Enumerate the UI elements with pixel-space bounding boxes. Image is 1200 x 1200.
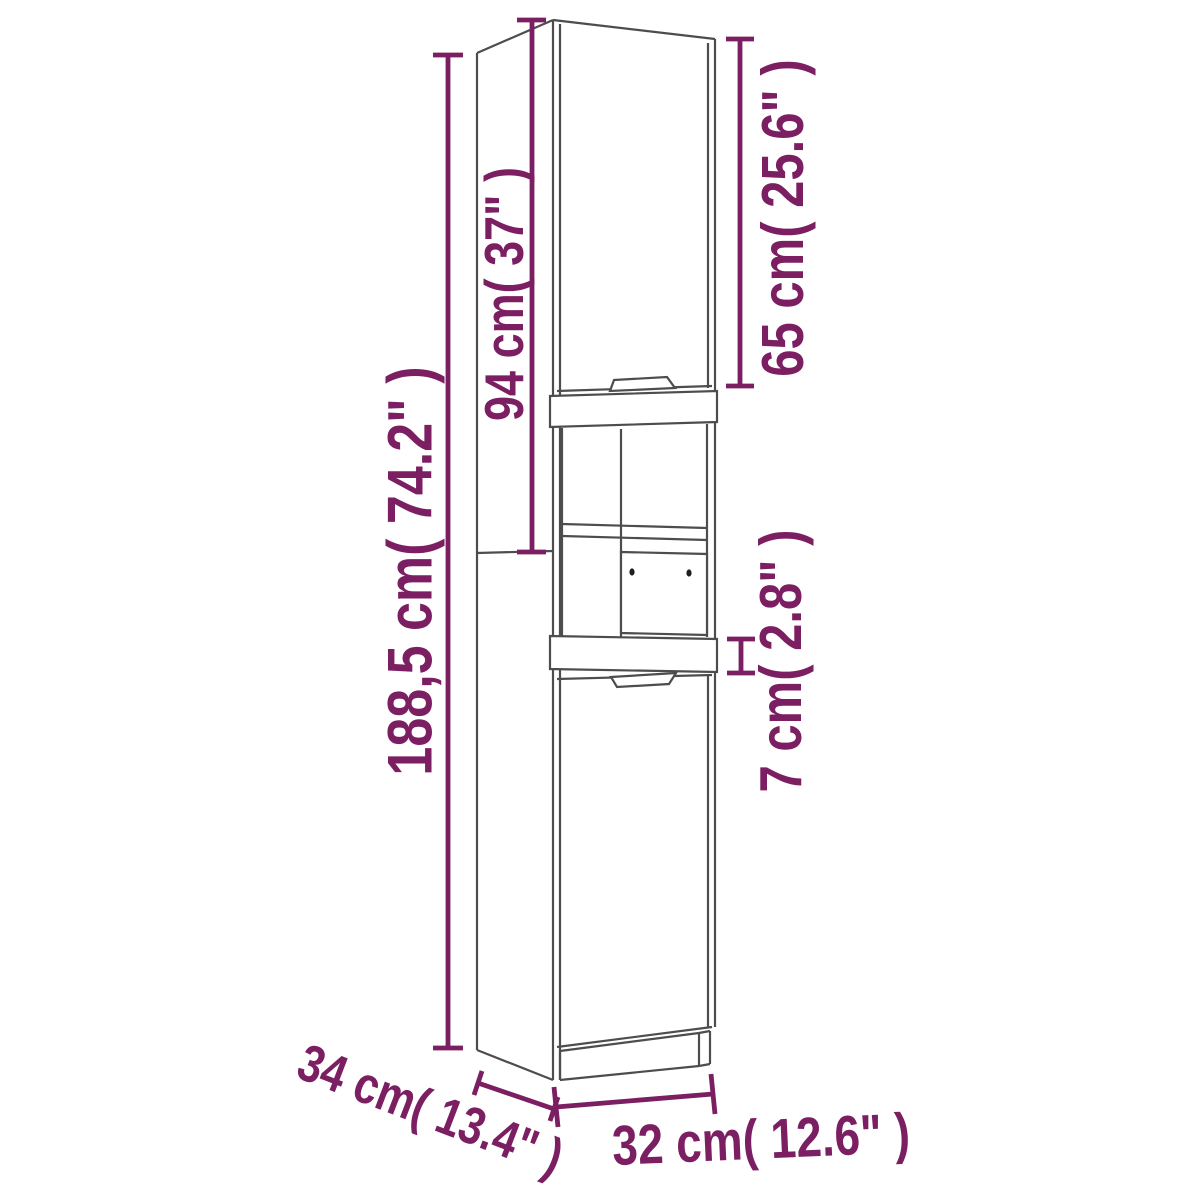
lower-door-bottom-edge: [557, 1027, 712, 1047]
width-line: [556, 1094, 713, 1107]
cabinet-upper-door: [557, 43, 712, 391]
side-panel-bottom-edge: [477, 1050, 553, 1080]
width-right-tick: [711, 1074, 715, 1114]
cabinet-open-compartment: [562, 424, 707, 637]
width-left-tick: [554, 1087, 558, 1127]
dimension-label-width: 32 cm( 12.6" ): [611, 1104, 911, 1173]
cabinet-inner-door: [621, 552, 707, 635]
plinth-right-bottom-sliver: [699, 1064, 710, 1066]
plinth-bottom-edge: [560, 1066, 699, 1080]
product-dimension-diagram: 188,5 cm( 74.2" ) 94 cm( 37" ) 65 cm( 25…: [0, 0, 1200, 1200]
plinth-right-top-sliver: [699, 1031, 710, 1033]
upper-door-handle: [610, 377, 675, 391]
cabinet-top-edge: [553, 20, 715, 39]
cabinet-base-plinth: [560, 1031, 710, 1080]
diagram-canvas: [0, 0, 1200, 1200]
plinth-top-edge: [560, 1033, 699, 1051]
dimension-label-upper-section-height: 94 cm( 37" ): [477, 167, 532, 421]
dimension-label-top-door-height: 65 cm( 25.6" ): [754, 59, 814, 376]
cabinet-bottom-rail: [550, 636, 717, 672]
inner-door-panel: [621, 552, 707, 635]
compartment-shelf-top-line: [562, 524, 707, 528]
dimension-label-total-height: 188,5 cm( 74.2" ): [379, 366, 442, 775]
cabinet-lower-door: [557, 673, 712, 1047]
lower-door-handle: [611, 673, 676, 687]
cabinet-middle-rail: [550, 391, 717, 427]
compartment-shelf-bottom-line: [562, 536, 707, 540]
inner-door-right-handle-hole: [686, 569, 691, 576]
side-panel-top-edge: [477, 20, 553, 53]
dimension-label-rail-height: 7 cm( 2.8" ): [752, 530, 812, 793]
inner-door-left-handle-hole: [629, 568, 634, 575]
